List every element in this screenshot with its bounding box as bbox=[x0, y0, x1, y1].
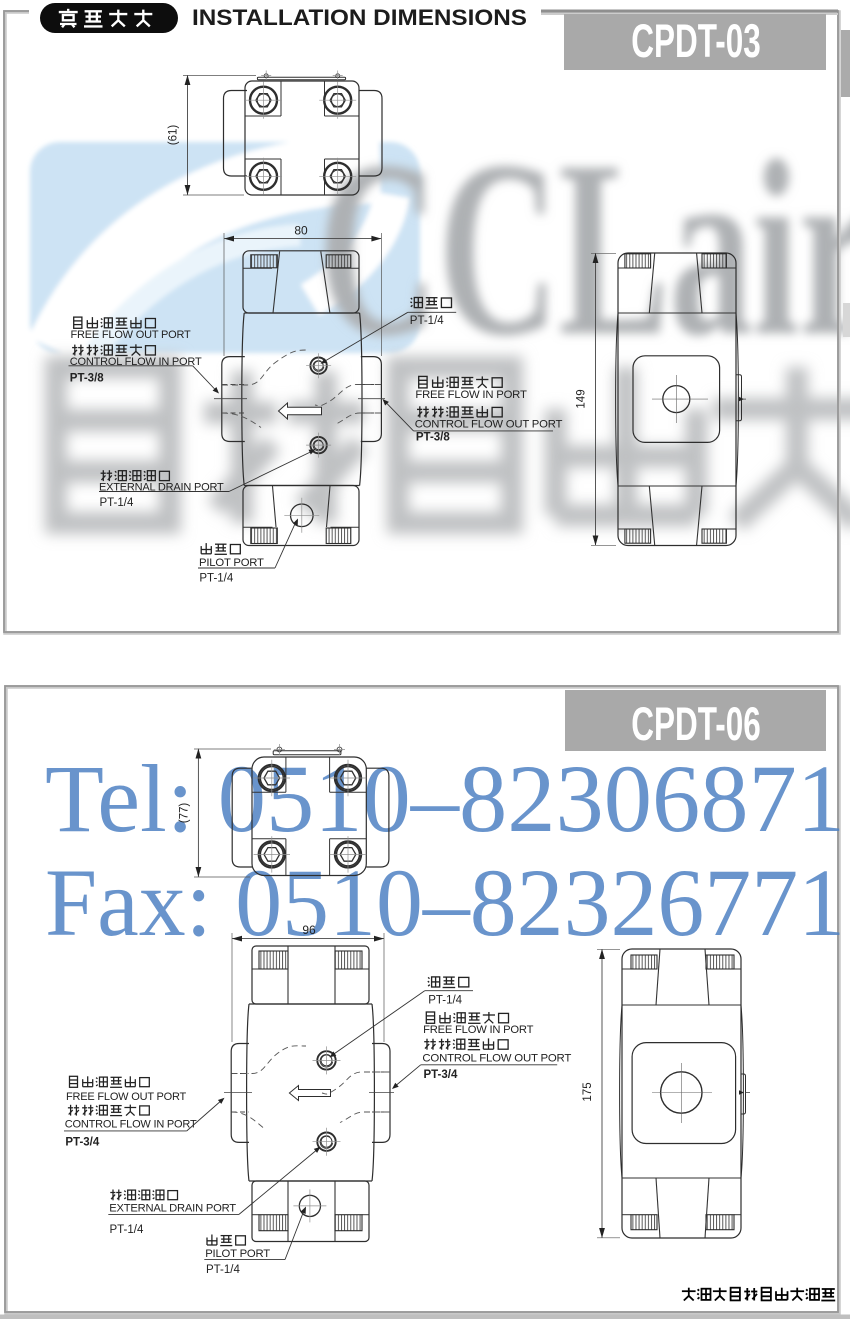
svg-text:PT-1/4: PT-1/4 bbox=[110, 1224, 144, 1236]
svg-text:(77): (77) bbox=[179, 803, 191, 824]
svg-text:CONTROL FLOW OUT PORT: CONTROL FLOW OUT PORT bbox=[422, 1052, 571, 1064]
svg-text:PT-3/8: PT-3/8 bbox=[416, 432, 450, 444]
svg-text:CPDT-06: CPDT-06 bbox=[631, 699, 760, 751]
svg-text:149: 149 bbox=[576, 389, 588, 408]
svg-text:Fax: 0510–82326771: Fax: 0510–82326771 bbox=[45, 849, 845, 956]
svg-text:CCLair: CCLair bbox=[318, 108, 850, 388]
svg-text:CONTROL FLOW IN PORT: CONTROL FLOW IN PORT bbox=[65, 1119, 197, 1131]
svg-text:FREE FLOW IN PORT: FREE FLOW IN PORT bbox=[423, 1024, 534, 1036]
svg-text:175: 175 bbox=[582, 1082, 594, 1101]
svg-text:PILOT PORT: PILOT PORT bbox=[205, 1248, 270, 1260]
svg-text:CPDT-03: CPDT-03 bbox=[631, 16, 760, 68]
svg-text:PT-1/4: PT-1/4 bbox=[410, 315, 444, 327]
svg-text:96: 96 bbox=[302, 923, 316, 937]
svg-text:PT-3/4: PT-3/4 bbox=[424, 1069, 458, 1081]
svg-text:PT-3/4: PT-3/4 bbox=[65, 1136, 99, 1148]
svg-text:FREE FLOW OUT PORT: FREE FLOW OUT PORT bbox=[71, 329, 192, 341]
svg-text:Tel: 0510–82306871: Tel: 0510–82306871 bbox=[45, 745, 845, 852]
svg-text:PT-1/4: PT-1/4 bbox=[206, 1264, 240, 1276]
svg-text:EXTERNAL DRAIN PORT: EXTERNAL DRAIN PORT bbox=[109, 1203, 236, 1215]
svg-text:PT-1/4: PT-1/4 bbox=[100, 497, 134, 509]
svg-text:INSTALLATION DIMENSIONS: INSTALLATION DIMENSIONS bbox=[192, 5, 527, 30]
svg-text:CONTROL FLOW OUT PORT: CONTROL FLOW OUT PORT bbox=[415, 418, 563, 430]
svg-text:(61): (61) bbox=[168, 125, 180, 146]
svg-text:FREE FLOW OUT PORT: FREE FLOW OUT PORT bbox=[66, 1091, 187, 1103]
svg-text:PILOT PORT: PILOT PORT bbox=[199, 557, 264, 569]
svg-text:PT-3/8: PT-3/8 bbox=[70, 373, 104, 385]
svg-text:FREE FLOW IN PORT: FREE FLOW IN PORT bbox=[415, 389, 527, 401]
svg-text:PT-1/4: PT-1/4 bbox=[199, 572, 233, 584]
svg-text:PT-1/4: PT-1/4 bbox=[428, 995, 462, 1007]
svg-text:80: 80 bbox=[294, 224, 308, 238]
